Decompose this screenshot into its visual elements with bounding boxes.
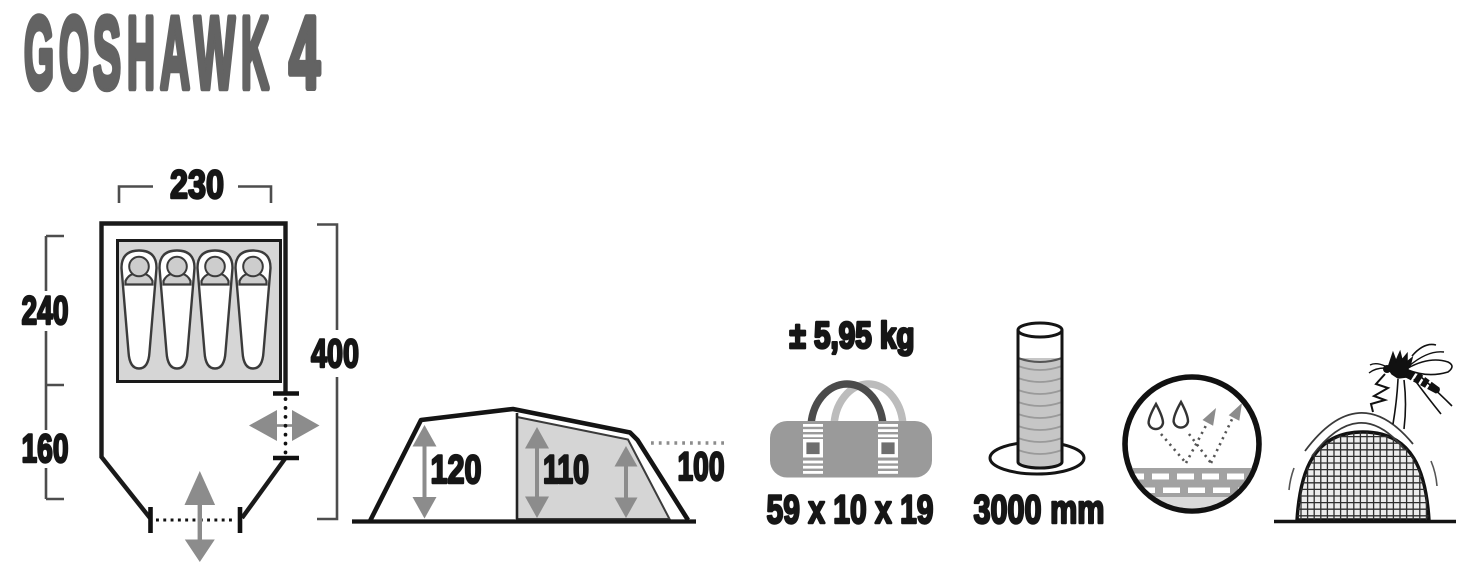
svg-text:3000 mm: 3000 mm [974,488,1105,532]
svg-text:230: 230 [170,163,224,207]
svg-text:K: K [241,0,269,110]
svg-text:240: 240 [22,289,69,333]
svg-text:4: 4 [289,0,320,110]
svg-text:H: H [127,0,155,110]
svg-text:O: O [59,0,89,110]
svg-text:160: 160 [22,427,69,471]
svg-text:S: S [93,0,121,110]
svg-text:± 5,95 kg: ± 5,95 kg [790,315,915,356]
svg-text:120: 120 [431,448,482,492]
svg-text:A: A [160,0,190,110]
svg-text:G: G [24,0,54,110]
svg-text:W: W [194,0,235,110]
svg-text:400: 400 [311,332,359,376]
svg-text:59 x 10 x 19: 59 x 10 x 19 [767,488,934,532]
svg-text:110: 110 [543,448,589,492]
svg-text:100: 100 [678,445,725,489]
